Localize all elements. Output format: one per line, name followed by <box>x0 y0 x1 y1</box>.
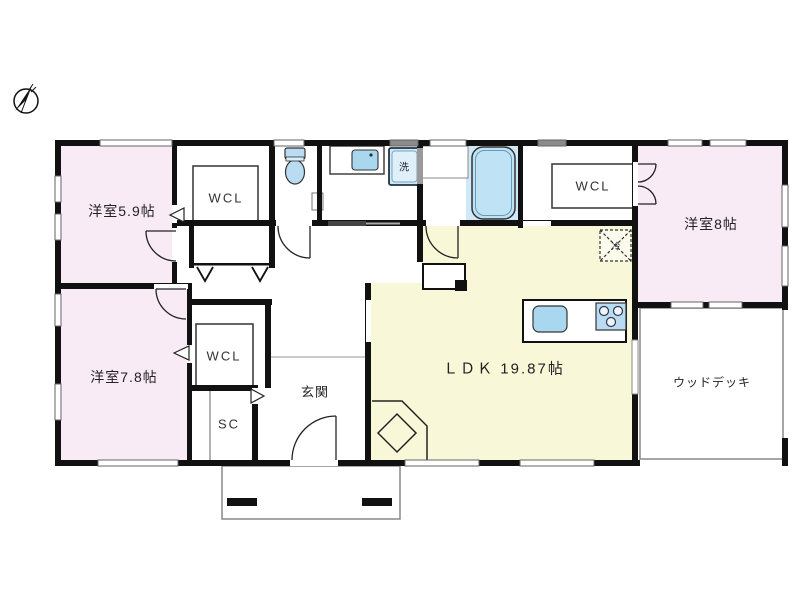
wall <box>265 302 271 388</box>
window-shutter <box>538 140 566 146</box>
room-8-label: 洋室8帖 <box>684 214 738 234</box>
washing-machine-label: 洗 <box>399 159 409 174</box>
room-5-9-label: 洋室5.9帖 <box>88 201 155 221</box>
sliding-door-washroom <box>328 221 366 226</box>
wall <box>189 299 272 305</box>
wcl-top-right-label: WCL <box>576 179 611 194</box>
window <box>520 460 594 466</box>
porch-step-right <box>362 498 392 506</box>
bath-counter <box>422 146 468 178</box>
window <box>710 140 746 146</box>
window <box>55 384 61 420</box>
stove-icon <box>596 303 626 330</box>
opening <box>426 220 460 226</box>
deck-sliding-door <box>632 340 638 394</box>
porch-outline <box>222 466 400 519</box>
window <box>55 294 61 326</box>
room-7-8-label: 洋室7.8帖 <box>90 367 157 387</box>
bath-door <box>417 148 423 184</box>
opening <box>523 221 551 226</box>
wall <box>187 286 192 466</box>
wall <box>189 222 194 268</box>
window <box>430 140 466 146</box>
window <box>405 460 479 466</box>
wall <box>269 140 275 268</box>
window <box>782 246 788 286</box>
window <box>55 214 61 240</box>
wcl-top-left-label: WCL <box>209 191 244 206</box>
window <box>668 140 702 146</box>
floor-plan-drawing <box>0 0 800 600</box>
bathtub-icon <box>472 147 515 219</box>
window <box>709 302 742 308</box>
opening <box>276 220 312 226</box>
genkan-label: 玄関 <box>301 382 329 401</box>
hall-storage-box <box>423 264 467 291</box>
floor-plan: 洋室5.9帖 洋室7.8帖 洋室8帖 ＬＤＫ 19.87帖 玄関 ウッドデッキ … <box>0 0 800 600</box>
wcl-middle-label: WCL <box>207 349 242 364</box>
wall <box>317 140 322 226</box>
kitchen-counter <box>523 300 626 342</box>
porch-step-left <box>227 498 257 506</box>
window <box>55 176 61 202</box>
opening <box>154 284 188 289</box>
refrigerator-label: 冷 <box>611 240 620 253</box>
ldk-label: ＬＤＫ 19.87帖 <box>443 358 565 379</box>
opening <box>633 162 638 206</box>
vanity-sink-icon <box>330 146 384 174</box>
opening <box>172 228 177 262</box>
window <box>782 185 788 227</box>
wall <box>782 438 788 466</box>
window <box>671 302 703 308</box>
wall <box>518 140 523 228</box>
kitchen-sink-icon <box>533 306 567 332</box>
wall <box>172 220 638 226</box>
opening <box>366 300 371 342</box>
compass-icon <box>14 84 38 113</box>
wood-deck-label: ウッドデッキ <box>673 374 751 391</box>
window <box>100 140 172 146</box>
entrance-opening <box>290 460 338 466</box>
shoe-closet-label: SC <box>218 417 240 432</box>
closet-front-line <box>189 263 275 266</box>
window <box>274 140 304 146</box>
wall <box>189 385 258 391</box>
window <box>98 460 178 466</box>
window-shutter <box>390 140 418 146</box>
